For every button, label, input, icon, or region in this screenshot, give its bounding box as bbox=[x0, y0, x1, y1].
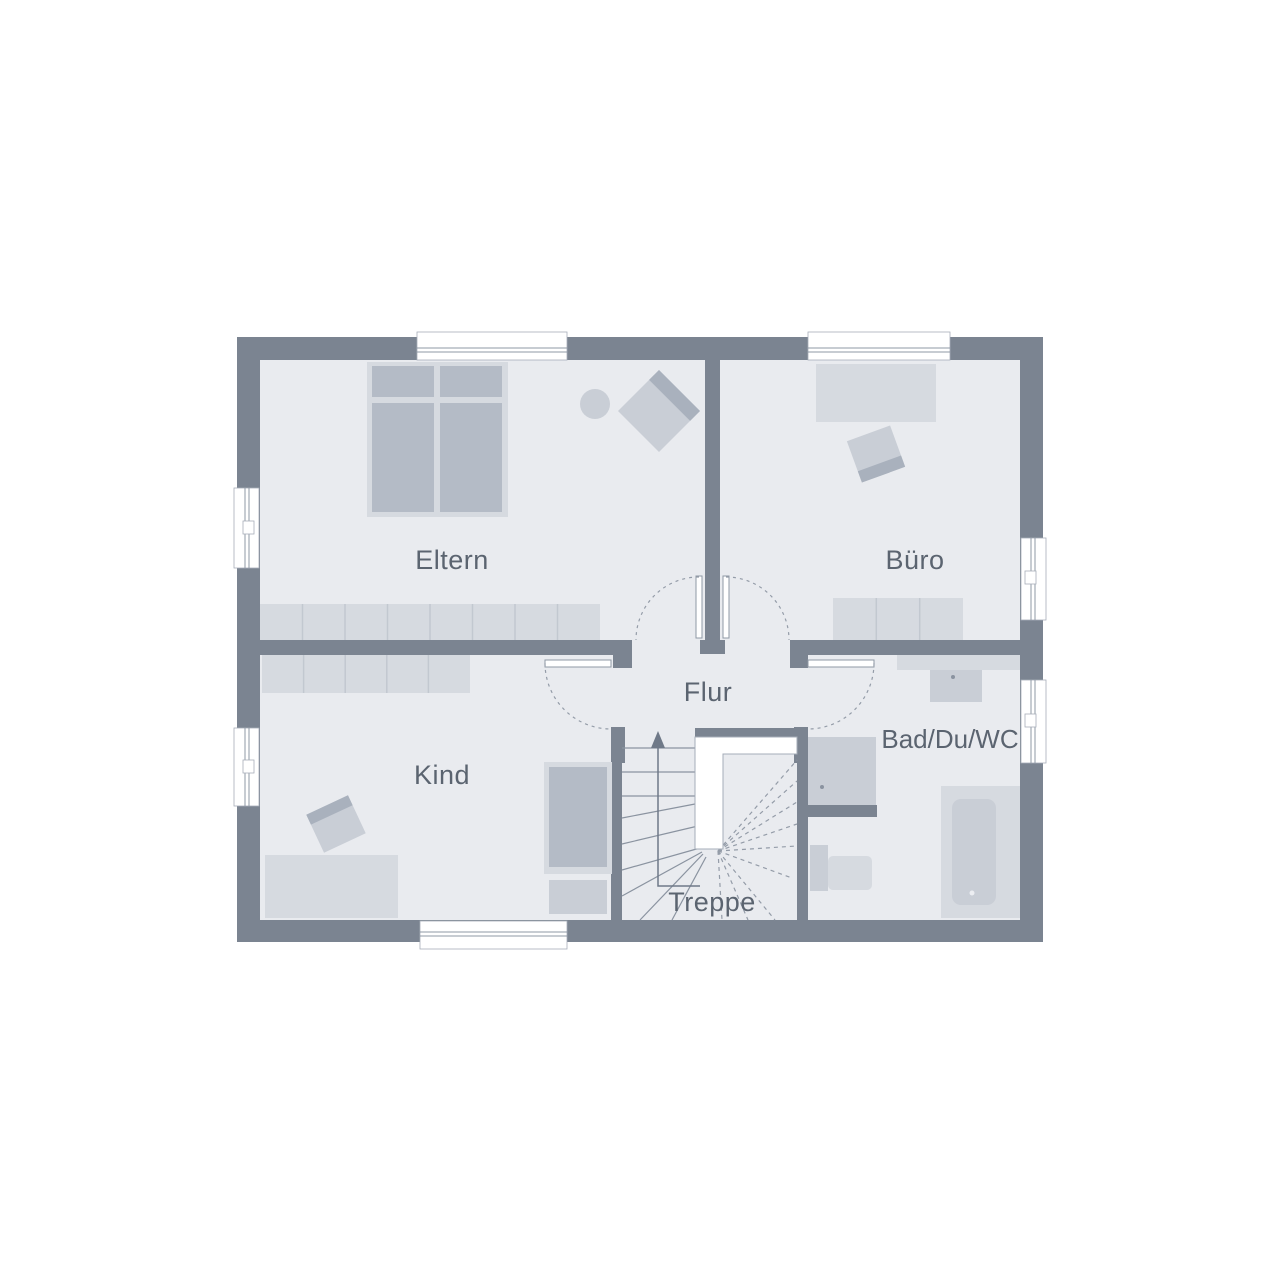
window-left-eltern bbox=[234, 488, 259, 568]
window-bottom-kind bbox=[420, 921, 567, 949]
stair-wall-left-stub bbox=[611, 727, 625, 763]
room-label-buero: Büro bbox=[885, 545, 944, 575]
bed-mattress-right bbox=[440, 403, 502, 512]
kids-desk bbox=[265, 855, 398, 918]
window-left-kind bbox=[234, 728, 259, 806]
window-right-buero bbox=[1021, 538, 1046, 620]
wardrobe-body bbox=[262, 655, 470, 693]
wall-buero-bad bbox=[790, 640, 1020, 655]
room-label-kind: Kind bbox=[414, 760, 470, 790]
shower bbox=[808, 737, 876, 805]
cabinet-buero bbox=[833, 598, 963, 640]
single-bed-mattress bbox=[549, 767, 607, 867]
bathtub bbox=[941, 786, 1020, 918]
room-label-bad: Bad/Du/WC bbox=[881, 724, 1018, 754]
wardrobe-eltern bbox=[260, 604, 600, 640]
sink bbox=[930, 670, 982, 702]
vanity-counter bbox=[897, 655, 1020, 670]
bed-pillow-right bbox=[440, 366, 502, 397]
wall-center-cap bbox=[700, 640, 725, 654]
wall-jamb-left bbox=[613, 640, 632, 668]
room-label-eltern: Eltern bbox=[415, 545, 489, 575]
wall-eltern-buero bbox=[705, 360, 720, 642]
cabinet-body bbox=[833, 598, 963, 640]
wall-jamb-right bbox=[790, 640, 808, 668]
side-table bbox=[580, 389, 610, 419]
room-label-treppe: Treppe bbox=[668, 887, 756, 917]
bed-pillow-left bbox=[372, 366, 434, 397]
office-desk bbox=[816, 364, 936, 422]
door-leaf-buero bbox=[723, 576, 729, 638]
room-label-flur: Flur bbox=[684, 677, 733, 707]
window-top-buero bbox=[808, 332, 950, 360]
sink-tap bbox=[951, 675, 955, 679]
single-bed bbox=[544, 762, 612, 914]
wall-shower-partition bbox=[800, 805, 877, 817]
wall-eltern-kind bbox=[260, 640, 630, 655]
door-leaf-kind bbox=[545, 660, 611, 667]
window-top-eltern bbox=[417, 332, 567, 360]
bathtub-drain bbox=[970, 891, 975, 896]
door-leaf-eltern bbox=[696, 576, 702, 638]
door-leaf-bad bbox=[808, 660, 874, 667]
toilet-bowl bbox=[828, 856, 872, 890]
window-right-bad bbox=[1021, 680, 1046, 763]
toilet-tank bbox=[810, 845, 828, 891]
wardrobe-kind bbox=[262, 655, 470, 693]
single-bed-foot bbox=[549, 880, 607, 914]
stair-wall-top bbox=[695, 728, 797, 737]
shower-drain bbox=[820, 785, 824, 789]
floor-plan: Eltern Büro bbox=[0, 0, 1280, 1280]
bathtub-basin bbox=[952, 799, 996, 905]
bed-mattress-left bbox=[372, 403, 434, 512]
